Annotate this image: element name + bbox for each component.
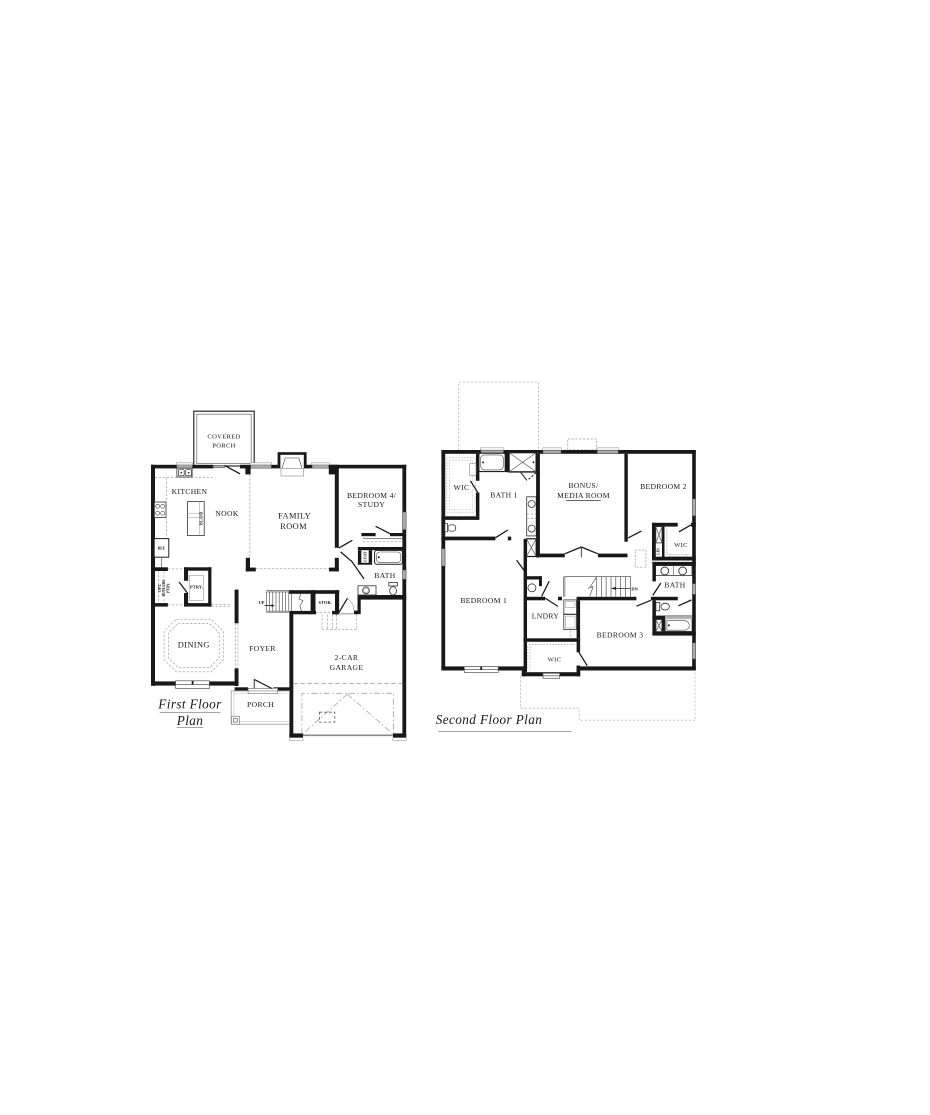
svg-text:KITCHEN: KITCHEN	[172, 487, 208, 496]
svg-text:ROOM: ROOM	[280, 522, 307, 531]
svg-text:STUDY: STUDY	[358, 500, 385, 509]
svg-text:BUTLERS: BUTLERS	[162, 580, 166, 597]
svg-text:Second Floor Plan: Second Floor Plan	[436, 712, 542, 727]
svg-text:BATH: BATH	[664, 581, 685, 590]
svg-text:DN: DN	[631, 586, 638, 591]
svg-text:LIN: LIN	[656, 548, 660, 555]
svg-text:MEDIA ROOM: MEDIA ROOM	[557, 491, 610, 500]
svg-text:WIC: WIC	[548, 656, 562, 663]
svg-text:BEDROOM 1: BEDROOM 1	[460, 596, 507, 605]
svg-text:UP: UP	[258, 600, 264, 605]
svg-text:PTRY.: PTRY.	[190, 585, 203, 590]
svg-text:NOOK: NOOK	[215, 509, 239, 518]
svg-text:Plan: Plan	[176, 713, 204, 728]
svg-text:BATH 1: BATH 1	[490, 490, 518, 499]
svg-text:COVERED: COVERED	[207, 434, 240, 441]
svg-text:2-CAR: 2-CAR	[335, 653, 359, 662]
svg-text:FAMILY: FAMILY	[278, 512, 311, 521]
svg-text:BATH: BATH	[374, 571, 395, 580]
svg-text:BEDROOM 2: BEDROOM 2	[640, 482, 687, 491]
svg-text:COAT: COAT	[363, 551, 367, 562]
svg-text:BEDROOM 3: BEDROOM 3	[597, 630, 644, 639]
svg-text:GARAGE: GARAGE	[330, 663, 364, 672]
svg-text:PORCH: PORCH	[212, 443, 236, 450]
svg-text:REF.: REF.	[158, 546, 166, 550]
svg-text:OPT.: OPT.	[158, 584, 162, 592]
svg-text:WIC: WIC	[454, 483, 470, 492]
svg-text:STOR.: STOR.	[318, 600, 331, 605]
svg-text:First Floor: First Floor	[157, 697, 222, 712]
svg-text:WIC: WIC	[674, 542, 688, 549]
svg-text:PTRY.: PTRY.	[167, 583, 171, 593]
svg-text:PORCH: PORCH	[247, 700, 274, 709]
svg-text:LNDRY: LNDRY	[532, 612, 560, 621]
svg-text:BEDROOM 4/: BEDROOM 4/	[347, 491, 397, 500]
svg-text:FOYER: FOYER	[249, 644, 276, 653]
svg-text:ISLAND: ISLAND	[200, 511, 204, 525]
svg-text:DINING: DINING	[178, 641, 210, 650]
svg-text:BONUS/: BONUS/	[569, 481, 599, 490]
